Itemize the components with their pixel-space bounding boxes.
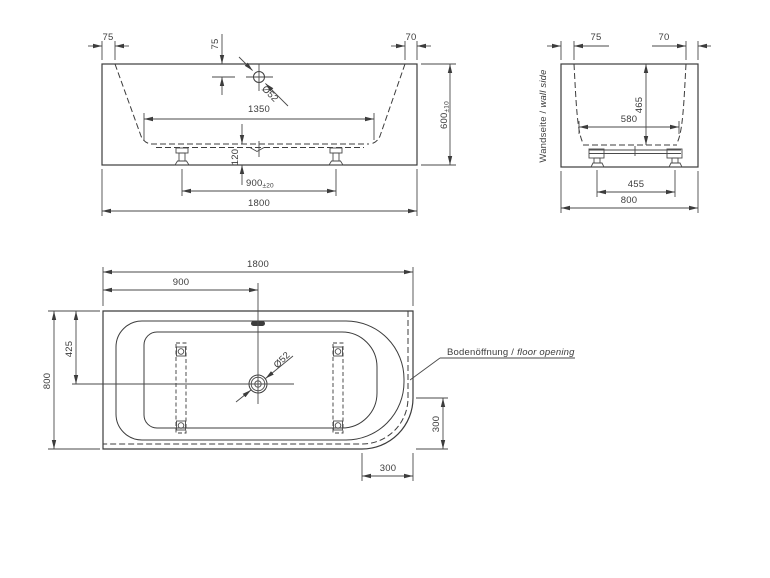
dim-label: 1800 bbox=[248, 198, 270, 209]
dim-label: 800 bbox=[621, 195, 637, 206]
dim-base-height: 120 bbox=[230, 124, 242, 185]
dim-label: 120 bbox=[230, 149, 241, 165]
dim-label: Ø52 bbox=[272, 350, 293, 371]
dim-total-height: 600±10 bbox=[421, 64, 456, 165]
dim-front-rim-left: 75 bbox=[88, 32, 129, 60]
floor-opening-label: Bodenöffnung /floor opening bbox=[447, 347, 575, 358]
dim-label: 425 bbox=[64, 341, 75, 357]
dim-label: Ø52 bbox=[259, 84, 280, 105]
dim-label: 1350 bbox=[248, 104, 270, 115]
dim-label: 800 bbox=[42, 373, 53, 389]
dim-label: 75 bbox=[103, 32, 114, 43]
dim-label: 75 bbox=[591, 32, 602, 43]
dim-inner-width: 580 bbox=[579, 114, 679, 134]
dim-label: 600±10 bbox=[439, 101, 451, 129]
dim-label: 75 bbox=[210, 39, 221, 50]
plan-view: Ø52 1800 900 425 800 bbox=[42, 259, 575, 481]
dim-front-total-length: 1800 bbox=[102, 169, 417, 216]
dim-label: 300 bbox=[431, 416, 442, 432]
plan-support-rails bbox=[176, 343, 343, 433]
dim-corner-vertical: 300 bbox=[416, 398, 448, 449]
dim-label: 900 bbox=[173, 277, 189, 288]
dim-label: 465 bbox=[634, 97, 645, 113]
wall-side-label: Wandseite /wall side bbox=[538, 69, 549, 162]
dim-label: 1800 bbox=[247, 259, 269, 270]
dim-label: 70 bbox=[659, 32, 670, 43]
dim-drain-from-left: 900 bbox=[103, 277, 258, 290]
end-view-feet bbox=[589, 146, 682, 167]
dim-label: 900±20 bbox=[246, 178, 274, 190]
dim-front-rim-right: 70 bbox=[391, 32, 431, 60]
dim-label: 300 bbox=[380, 463, 396, 474]
dim-end-feet-spacing: 455 bbox=[597, 170, 675, 197]
floor-opening-callout: Bodenöffnung /floor opening bbox=[410, 347, 575, 380]
dim-inner-depth: 465 bbox=[634, 64, 646, 145]
dim-corner-horizontal: 300 bbox=[362, 453, 413, 481]
dim-end-rim-right: 70 bbox=[652, 32, 711, 60]
bathtub-dimension-drawing: 75 70 75 Ø52 1350 bbox=[0, 0, 770, 578]
dim-label: 580 bbox=[621, 114, 637, 125]
dim-inner-length: 1350 bbox=[144, 104, 374, 140]
end-view: Wandseite /wall side 75 70 465 bbox=[538, 32, 711, 213]
front-view: 75 70 75 Ø52 1350 bbox=[88, 32, 456, 216]
dim-label: 455 bbox=[628, 179, 644, 190]
technical-drawing-page: 75 70 75 Ø52 1350 bbox=[0, 0, 770, 578]
dim-drain-from-top: 425 bbox=[48, 311, 100, 384]
drain bbox=[72, 283, 294, 404]
drain-diameter-leader: Ø52 bbox=[236, 350, 293, 402]
dim-end-rim-left: 75 bbox=[547, 32, 609, 60]
dim-label: 70 bbox=[406, 32, 417, 43]
dim-plan-total-width: 800 bbox=[42, 311, 100, 449]
dim-feet-spacing: 900±20 bbox=[182, 169, 336, 196]
